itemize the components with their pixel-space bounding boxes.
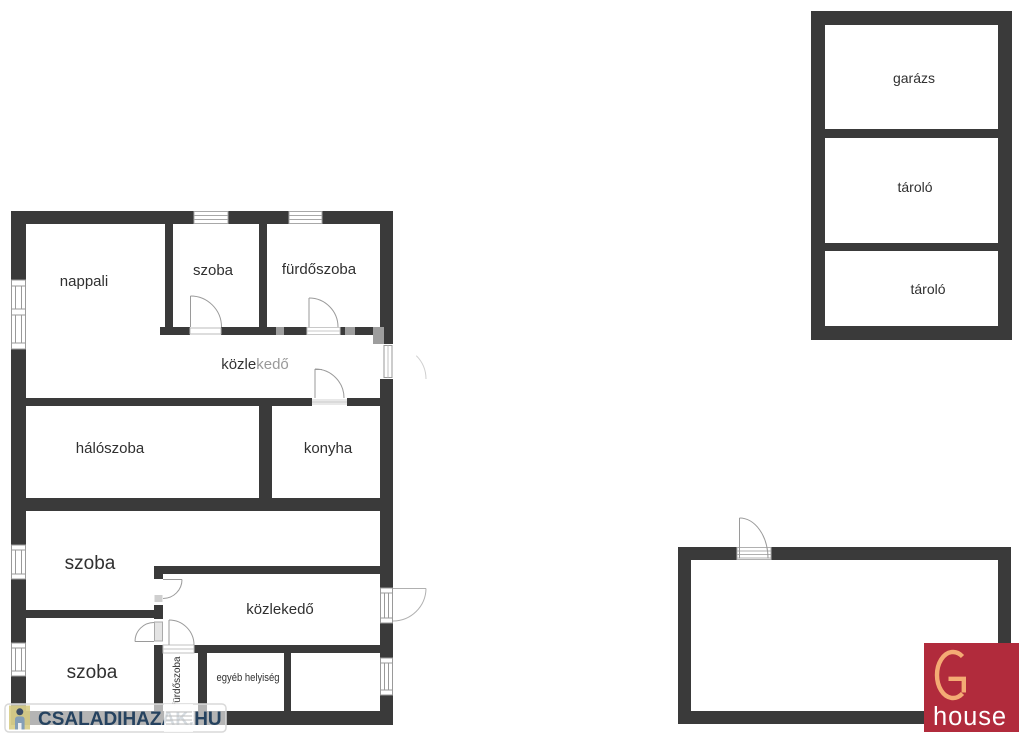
svg-text:CSALADIHAZAK.HU: CSALADIHAZAK.HU — [38, 709, 222, 730]
svg-text:közlekedő: közlekedő — [221, 356, 289, 373]
svg-text:szoba: szoba — [193, 262, 234, 279]
svg-text:konyha: konyha — [304, 440, 353, 457]
svg-text:közlekedő: közlekedő — [246, 601, 314, 618]
svg-text:tároló: tároló — [897, 179, 932, 195]
svg-text:fürdőszoba: fürdőszoba — [171, 656, 183, 705]
svg-text:egyéb helyiség: egyéb helyiség — [217, 672, 280, 684]
svg-text:hálószoba: hálószoba — [76, 440, 145, 457]
svg-text:szoba: szoba — [67, 662, 118, 683]
svg-text:tároló: tároló — [910, 281, 945, 297]
svg-text:fürdőszoba: fürdőszoba — [282, 261, 357, 278]
svg-text:szoba: szoba — [65, 553, 116, 574]
svg-text:nappali: nappali — [60, 273, 108, 290]
svg-text:garázs: garázs — [893, 70, 935, 86]
svg-text:house: house — [933, 703, 1007, 731]
